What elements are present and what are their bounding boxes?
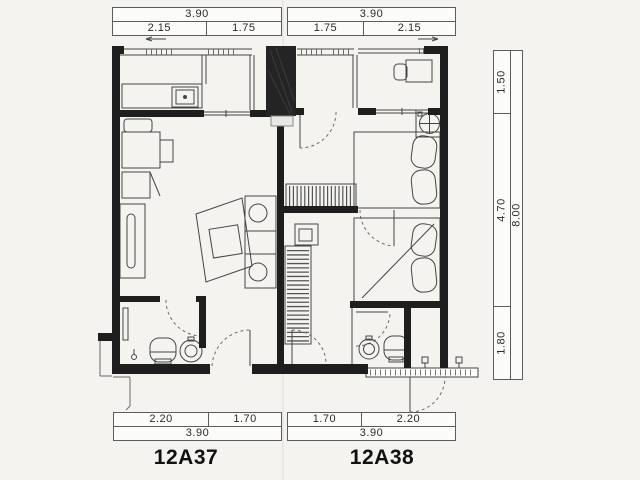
hall-door-arc (292, 330, 326, 364)
sliding-door (204, 108, 428, 117)
dim-part: 1.80 (496, 331, 508, 354)
toilet-icon (150, 338, 176, 364)
dim-part: 4.70 (496, 198, 508, 221)
tv-cabinet-icon (295, 224, 318, 245)
mirror-cabinet-icon (123, 308, 128, 340)
chair-icon (124, 119, 152, 132)
dim-total: 3.90 (114, 427, 281, 440)
dim-table-right-side: 1.50 4.70 1.80 8.00 (493, 50, 523, 380)
dim-part: 2.15 (363, 22, 455, 35)
dim-total: 3.90 (288, 427, 455, 440)
bed-icon (354, 218, 440, 303)
sofa-icon (245, 196, 276, 288)
floor-drain-icon (132, 349, 137, 360)
sink-icon (172, 87, 198, 107)
unit-left-furniture (100, 84, 276, 410)
desk-icon (394, 60, 432, 82)
dim-part: 1.70 (288, 413, 361, 426)
dim-table-top-left: 3.90 2.15 1.75 (112, 7, 282, 36)
dim-total: 3.90 (288, 8, 455, 21)
dim-part: 2.20 (114, 413, 208, 426)
dim-part: 1.70 (208, 413, 281, 426)
dim-part: 1.75 (206, 22, 281, 35)
floor-plan-drawing (0, 0, 640, 480)
table-icon (196, 198, 252, 282)
dimension-arrow (146, 37, 438, 41)
sideboard-icon (120, 204, 145, 278)
dim-total: 3.90 (113, 8, 281, 21)
floor-plan-page: 3.90 2.15 1.75 3.90 1.75 2.15 2.20 1.70 … (0, 0, 640, 480)
dim-part: 2.15 (113, 22, 206, 35)
basin-icon (180, 337, 202, 362)
dim-part: 2.20 (361, 413, 455, 426)
unit-label-right: 12A38 (322, 446, 442, 470)
unit-label-left: 12A37 (126, 446, 246, 470)
bathroom-door-arc (166, 300, 202, 336)
dim-table-bottom-left: 2.20 1.70 3.90 (113, 412, 282, 441)
entrance-porch (366, 357, 478, 377)
wardrobe-icon (286, 184, 356, 208)
dim-total: 8.00 (511, 203, 523, 226)
desk-icon (122, 132, 173, 168)
entrance-door-arc (410, 377, 445, 412)
bed-icon (354, 132, 440, 208)
dim-part: 1.75 (288, 22, 363, 35)
balcony-door-arc (300, 112, 336, 148)
dim-table-bottom-right: 1.70 2.20 3.90 (287, 412, 456, 441)
cabinet-icon (122, 172, 160, 198)
dim-table-top-right: 3.90 1.75 2.15 (287, 7, 456, 36)
entrance-door-arc (212, 330, 250, 366)
dim-part: 1.50 (496, 70, 508, 93)
basin-icon (359, 336, 379, 359)
wardrobe-icon (285, 246, 311, 344)
bedroom-door-arc (360, 210, 394, 246)
service-shaft (266, 46, 296, 126)
